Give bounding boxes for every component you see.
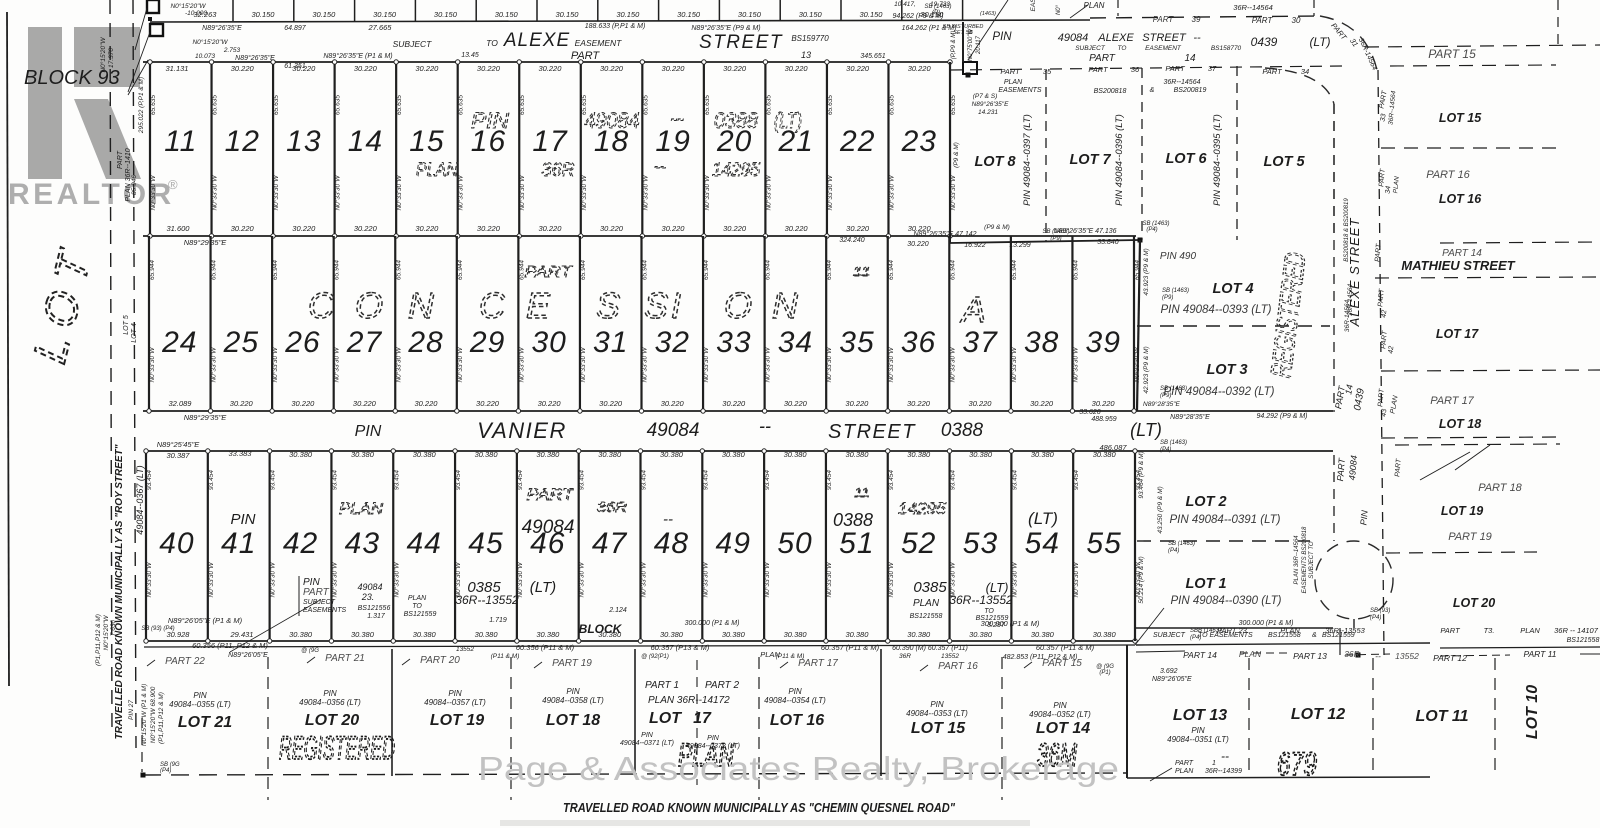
svg-text:PART 14: PART 14 <box>1183 650 1217 660</box>
svg-text:36: 36 <box>901 326 936 359</box>
svg-text:65.944: 65.944 <box>149 260 156 280</box>
svg-text:23: 23 <box>901 125 937 158</box>
svg-text:N0°33'30"W: N0°33'30"W <box>394 347 402 383</box>
svg-text:N0°33'30"W: N0°33'30"W <box>887 175 895 211</box>
svg-text:LOT 20: LOT 20 <box>305 712 359 729</box>
svg-text:SB (93): SB (93) <box>1370 608 1390 614</box>
svg-text:(P4): (P4) <box>1168 548 1179 554</box>
svg-text:N89°26'35"E 47.142: N89°26'35"E 47.142 <box>913 230 976 238</box>
svg-text:30.150: 30.150 <box>677 10 701 19</box>
svg-text:N89°26'05"E (P1 & M): N89°26'05"E (P1 & M) <box>168 616 243 625</box>
svg-text:13: 13 <box>286 125 321 158</box>
svg-text:30.220: 30.220 <box>599 399 623 408</box>
svg-text:12: 12 <box>225 125 260 158</box>
svg-text:PLAN 36R--14564: PLAN 36R--14564 <box>1294 535 1300 585</box>
svg-text:@ (92(P1): @ (92(P1) <box>641 654 669 660</box>
svg-text:PART: PART <box>525 264 573 281</box>
svg-text:55: 55 <box>1086 527 1121 560</box>
svg-text:34: 34 <box>778 326 813 359</box>
svg-text:60.356 (P11 & M): 60.356 (P11 & M) <box>516 643 575 652</box>
svg-text:VANIER: VANIER <box>477 418 567 443</box>
svg-text:30.220: 30.220 <box>662 64 686 73</box>
svg-text:PLAN 36R--14172: PLAN 36R--14172 <box>648 695 730 706</box>
svg-text:PART 12: PART 12 <box>1433 653 1467 663</box>
svg-text:51: 51 <box>839 527 874 560</box>
svg-text:LOT 11: LOT 11 <box>1415 708 1468 725</box>
svg-text:65.944: 65.944 <box>580 260 587 280</box>
svg-text:(LT): (LT) <box>530 579 556 596</box>
svg-text:C: C <box>308 285 335 326</box>
svg-text:93.454: 93.454 <box>1073 470 1080 490</box>
svg-text:TO: TO <box>1118 45 1127 52</box>
svg-text:30: 30 <box>1292 16 1301 25</box>
svg-text:65.635: 65.635 <box>335 95 342 115</box>
svg-text:SB (1463): SB (1463) <box>1168 541 1195 547</box>
svg-text:--: -- <box>654 156 666 176</box>
svg-text:PART 19: PART 19 <box>552 658 592 669</box>
svg-text:43: 43 <box>1381 409 1389 417</box>
svg-text:N0°33'30"W: N0°33'30"W <box>641 347 649 383</box>
svg-text:N0°33'30"W: N0°33'30"W <box>334 175 342 211</box>
svg-text:65.944: 65.944 <box>334 260 341 280</box>
svg-text:PLAN: PLAN <box>339 499 384 518</box>
svg-text:10.417,: 10.417, <box>894 1 916 8</box>
svg-text:LOT 1: LOT 1 <box>1185 576 1226 592</box>
svg-text:PART: PART <box>1335 456 1347 481</box>
svg-text:43.923 (P9 & M): 43.923 (P9 & M) <box>1143 248 1150 295</box>
svg-text:N0°33'30"W: N0°33'30"W <box>578 562 586 598</box>
svg-text:30.220: 30.220 <box>784 399 808 408</box>
svg-text:LOT 14: LOT 14 <box>1036 720 1090 737</box>
svg-text:36R--13552: 36R--13552 <box>949 593 1013 607</box>
svg-text:13.299: 13.299 <box>1009 242 1031 249</box>
svg-text:30.387: 30.387 <box>167 451 191 460</box>
svg-text:30.150: 30.150 <box>860 10 884 19</box>
svg-text:30.380: 30.380 <box>475 450 499 459</box>
svg-text:STREET: STREET <box>1142 32 1187 44</box>
svg-text:93.454: 93.454 <box>950 470 957 490</box>
svg-text:10.073: 10.073 <box>195 53 215 60</box>
svg-text:LOT 4: LOT 4 <box>131 323 138 343</box>
svg-text:C: C <box>479 285 506 326</box>
svg-text:93.454: 93.454 <box>641 470 648 490</box>
svg-text:30.220: 30.220 <box>414 399 438 408</box>
svg-text:13.45: 13.45 <box>461 52 479 59</box>
svg-text:N: N <box>408 285 435 326</box>
svg-text:N0°33'30"W: N0°33'30"W <box>764 175 772 211</box>
svg-text:93.454: 93.454 <box>270 470 277 490</box>
svg-text:32: 32 <box>655 326 690 359</box>
svg-text:49084--0355 (LT): 49084--0355 (LT) <box>169 700 231 709</box>
svg-text:14295: 14295 <box>898 499 947 518</box>
svg-text:TO: TO <box>486 38 498 48</box>
svg-text:93.454: 93.454 <box>702 470 709 490</box>
svg-text:N0°: N0° <box>1056 4 1062 15</box>
svg-text:93.454: 93.454 <box>517 470 524 490</box>
svg-text:(P4): (P4) <box>160 768 171 774</box>
svg-text:30.220: 30.220 <box>661 399 685 408</box>
svg-text:1: 1 <box>1212 760 1216 767</box>
svg-text:N0°33'30"W: N0°33'30"W <box>456 347 464 383</box>
svg-text:(LT): (LT) <box>1028 509 1058 528</box>
svg-text:0388: 0388 <box>833 510 873 530</box>
svg-text:93.454: 93.454 <box>579 470 586 490</box>
svg-text:36R: 36R <box>899 653 911 660</box>
svg-text:PART: PART <box>1440 626 1461 635</box>
svg-text:65.944: 65.944 <box>272 260 279 280</box>
svg-text:2.124: 2.124 <box>608 607 627 614</box>
svg-text:PART 21: PART 21 <box>325 653 365 664</box>
svg-text:--: -- <box>1193 32 1201 44</box>
svg-text:65.944: 65.944 <box>826 260 833 280</box>
svg-text:49: 49 <box>716 527 751 560</box>
svg-text:(LT): (LT) <box>774 108 802 133</box>
svg-text:33.840: 33.840 <box>1097 239 1119 246</box>
svg-text:--: -- <box>1375 651 1381 661</box>
svg-text:30.380: 30.380 <box>660 630 684 639</box>
svg-text:N89°28'35"E: N89°28'35"E <box>1143 400 1181 408</box>
svg-text:93.454: 93.454 <box>826 470 833 490</box>
svg-text:30.220: 30.220 <box>476 399 500 408</box>
svg-text:49084--0351 (LT): 49084--0351 (LT) <box>1167 735 1229 744</box>
svg-text:65.635: 65.635 <box>642 95 649 115</box>
svg-text:STREET: STREET <box>699 32 783 53</box>
svg-text:N0°33'30"W: N0°33'30"W <box>149 175 157 211</box>
svg-text:30.150: 30.150 <box>616 10 640 19</box>
svg-text:13552: 13552 <box>456 646 474 653</box>
svg-text:65.944: 65.944 <box>1072 260 1079 280</box>
svg-text:N0°15'20"W (P1 & M): N0°15'20"W (P1 & M) <box>140 684 148 747</box>
svg-text:--: -- <box>663 511 673 528</box>
svg-text:PIN: PIN <box>1191 726 1205 735</box>
svg-text:N0°33'30"W: N0°33'30"W <box>1010 347 1018 383</box>
svg-text:N0°33'30"W: N0°33'30"W <box>210 347 218 383</box>
svg-text:25: 25 <box>223 326 259 359</box>
svg-text:3.692: 3.692 <box>1160 668 1178 675</box>
svg-text:14295: 14295 <box>712 160 760 181</box>
svg-text:93.454: 93.454 <box>764 470 771 490</box>
svg-text:S: S <box>644 285 668 326</box>
svg-text:PART: PART <box>1089 53 1116 64</box>
svg-text:@ (9G: @ (9G <box>301 648 319 654</box>
svg-text:33: 33 <box>1379 113 1387 122</box>
svg-text:36R--14564: 36R--14564 <box>1233 3 1273 12</box>
svg-text:93.464 (P9 & M): 93.464 (P9 & M) <box>1138 451 1145 498</box>
svg-text:LOT 7: LOT 7 <box>1069 152 1111 168</box>
svg-text:64.897: 64.897 <box>284 25 307 32</box>
svg-text:N0°33'30"W: N0°33'30"W <box>207 562 215 598</box>
svg-text:LOT 16: LOT 16 <box>770 712 824 729</box>
svg-text:60.390 (M) 60.357 (P11): 60.390 (M) 60.357 (P11) <box>892 645 968 652</box>
svg-text:BS200818: BS200818 <box>1094 88 1127 95</box>
svg-text:30.380: 30.380 <box>413 630 437 639</box>
svg-text:93.454: 93.454 <box>208 470 215 490</box>
svg-text:N89°26'35"E: N89°26'35"E <box>972 100 1010 108</box>
svg-text:EASEMENT: EASEMENT <box>575 38 623 48</box>
svg-text:PIN: PIN <box>323 689 337 698</box>
svg-text:SUBJECT: SUBJECT <box>393 39 433 49</box>
svg-text:17: 17 <box>693 710 712 727</box>
svg-text:48: 48 <box>654 527 689 560</box>
svg-text:PART: PART <box>1165 64 1186 73</box>
svg-text:30.220: 30.220 <box>785 64 809 73</box>
svg-text:30.220: 30.220 <box>292 64 316 73</box>
svg-text:36R: 36R <box>1344 649 1360 659</box>
svg-text:LOT 5: LOT 5 <box>1263 154 1305 170</box>
svg-text:49084--0371 (LT): 49084--0371 (LT) <box>620 740 674 747</box>
svg-text:36R--14399: 36R--14399 <box>1205 768 1242 775</box>
svg-text:49084--0354 (LT): 49084--0354 (LT) <box>764 696 826 705</box>
svg-text:65.635: 65.635 <box>827 95 834 115</box>
svg-text:(P9): (P9) <box>1160 393 1171 399</box>
svg-text:30.150: 30.150 <box>556 10 580 19</box>
svg-text:65.635: 65.635 <box>519 95 526 115</box>
svg-text:N0°33'30"W: N0°33'30"W <box>211 175 219 211</box>
svg-text:PIN 49084--0393 (LT): PIN 49084--0393 (LT) <box>1160 304 1271 316</box>
svg-text:PART: PART <box>1262 67 1283 76</box>
svg-text:LOT 18: LOT 18 <box>1439 417 1481 431</box>
svg-text:22: 22 <box>839 125 875 158</box>
svg-text:PART 20: PART 20 <box>420 655 460 666</box>
svg-text:BS121558: BS121558 <box>1268 632 1301 639</box>
svg-text:65.635: 65.635 <box>704 95 711 115</box>
svg-text:33.620: 33.620 <box>1079 409 1101 416</box>
svg-text:N0°33'30"W: N0°33'30"W <box>763 562 771 598</box>
svg-text:N0°15'20"W: N0°15'20"W <box>192 38 228 46</box>
svg-text:42: 42 <box>283 527 318 560</box>
svg-text:30.380: 30.380 <box>1031 450 1055 459</box>
svg-text:42: 42 <box>1388 346 1396 354</box>
svg-text:65.635: 65.635 <box>950 95 957 115</box>
svg-text:14: 14 <box>1184 53 1196 64</box>
svg-text:N0°33'30"W: N0°33'30"W <box>580 175 588 211</box>
svg-text:49084--0356 (LT): 49084--0356 (LT) <box>299 698 361 707</box>
svg-text:LOT 15: LOT 15 <box>1439 111 1482 125</box>
svg-text:N0°33'30"W: N0°33'30"W <box>640 562 648 598</box>
svg-text:PIN: PIN <box>566 687 580 696</box>
svg-text:30.220: 30.220 <box>538 224 562 233</box>
svg-text:N89°26'05"E: N89°26'05"E <box>228 651 268 659</box>
svg-text:PART 13: PART 13 <box>1293 651 1327 661</box>
svg-text:30.220: 30.220 <box>477 224 501 233</box>
svg-text:PIN 49084--0397 (LT): PIN 49084--0397 (LT) <box>1022 114 1033 206</box>
svg-text:SUBJECT: SUBJECT <box>1153 632 1186 639</box>
svg-text:A: A <box>960 289 986 330</box>
svg-text:BS200819: BS200819 <box>1174 87 1207 94</box>
svg-text:42: 42 <box>1381 310 1389 318</box>
svg-text:PART 16: PART 16 <box>938 661 978 672</box>
svg-text:29: 29 <box>469 326 505 359</box>
svg-text:324.240: 324.240 <box>839 237 864 244</box>
svg-text:N0°33'30"W: N0°33'30"W <box>1072 562 1080 598</box>
svg-text:60.357 (P11 & M): 60.357 (P11 & M) <box>821 643 880 652</box>
svg-text:(P9): (P9) <box>1162 295 1173 301</box>
svg-text:30.380: 30.380 <box>1093 450 1117 459</box>
svg-text:0439: 0439 <box>1251 35 1278 49</box>
svg-text:N0°33'30"W: N0°33'30"W <box>392 562 400 598</box>
svg-text:ALEXE: ALEXE <box>1097 32 1134 44</box>
svg-text:SB (1463): SB (1463) <box>1162 288 1189 294</box>
svg-text:13552: 13552 <box>941 653 959 660</box>
svg-text:&: & <box>1312 632 1317 639</box>
svg-text:0388: 0388 <box>941 420 984 441</box>
svg-text:30.380: 30.380 <box>722 450 746 459</box>
svg-text:(P4): (P4) <box>1160 447 1171 453</box>
svg-text:30.380: 30.380 <box>845 450 869 459</box>
svg-text:30.380: 30.380 <box>969 630 993 639</box>
svg-text:30.150: 30.150 <box>373 10 397 19</box>
svg-text:30.220: 30.220 <box>354 64 378 73</box>
svg-text:N89°29'35"E: N89°29'35"E <box>184 413 228 422</box>
svg-text:BS121556: BS121556 <box>358 605 391 612</box>
svg-text:17.370: 17.370 <box>108 48 115 68</box>
svg-text:(P9 & M): (P9 & M) <box>953 142 960 168</box>
svg-text:93.454: 93.454 <box>455 470 462 490</box>
svg-text:PIN 49084--0395 (LT): PIN 49084--0395 (LT) <box>1212 114 1223 206</box>
svg-text:30.220: 30.220 <box>231 224 255 233</box>
svg-text:36R--14564: 36R--14564 <box>1164 79 1201 86</box>
svg-text:BS121559: BS121559 <box>404 611 437 618</box>
svg-text:PART 16: PART 16 <box>1426 169 1470 181</box>
svg-text:N0°33'30"W: N0°33'30"W <box>826 175 834 211</box>
svg-text:11: 11 <box>855 485 870 500</box>
svg-text:49084--0357 (LT): 49084--0357 (LT) <box>424 698 486 707</box>
svg-text:LOT 10: LOT 10 <box>1524 685 1541 739</box>
svg-text:52: 52 <box>901 527 936 560</box>
svg-text:PLAN: PLAN <box>408 595 427 602</box>
svg-text:65.944: 65.944 <box>1011 260 1018 280</box>
svg-text:PIN: PIN <box>992 31 1012 43</box>
svg-text:PIN: PIN <box>930 700 944 709</box>
svg-text:60.357 (P11 & M): 60.357 (P11 & M) <box>1036 643 1095 652</box>
svg-text:93.454: 93.454 <box>1011 470 1018 490</box>
svg-text:PIN 49084--0396 (LT): PIN 49084--0396 (LT) <box>1114 114 1125 206</box>
svg-text:E: E <box>526 285 551 326</box>
svg-text:30.220: 30.220 <box>354 224 378 233</box>
svg-text:30.220: 30.220 <box>231 64 255 73</box>
svg-text:N0°15'20"W 68.900: N0°15'20"W 68.900 <box>149 686 157 743</box>
svg-text:93.454: 93.454 <box>331 470 338 490</box>
svg-text:TO: TO <box>412 603 422 610</box>
svg-text:BS121559: BS121559 <box>1322 632 1355 639</box>
svg-text:LOT 21: LOT 21 <box>178 714 232 731</box>
svg-text:SB (1463): SB (1463) <box>1160 440 1187 446</box>
svg-text:93.454: 93.454 <box>393 470 400 490</box>
svg-text:27.665: 27.665 <box>368 23 393 32</box>
svg-text:®: ® <box>168 177 178 192</box>
svg-text:BS121558: BS121558 <box>1567 637 1600 644</box>
svg-text:300.000 (P1 & M): 300.000 (P1 & M) <box>685 620 740 627</box>
svg-text:N0°33'30"W: N0°33'30"W <box>271 347 279 383</box>
svg-text:TRAVELLED ROAD KNOWN MUNI: TRAVELLED ROAD KNOWN MUNICIPALLY AS "CHE… <box>563 801 956 815</box>
svg-text:30.220: 30.220 <box>845 399 869 408</box>
svg-text:30.220: 30.220 <box>723 224 747 233</box>
svg-text:65.635: 65.635 <box>273 95 280 115</box>
svg-text:-10.000: -10.000 <box>185 10 207 17</box>
svg-text:30.380: 30.380 <box>289 630 313 639</box>
svg-text:30.380: 30.380 <box>413 450 437 459</box>
svg-text:N0°33'30"W: N0°33'30"W <box>825 347 833 383</box>
svg-text:I: I <box>671 285 681 326</box>
svg-text:65.944: 65.944 <box>395 260 402 280</box>
svg-text:30.150: 30.150 <box>738 10 762 19</box>
svg-text:PIN 49084--0390 (LT): PIN 49084--0390 (LT) <box>1170 595 1281 607</box>
svg-text:30.380: 30.380 <box>1031 630 1055 639</box>
svg-text:PIN: PIN <box>355 423 382 440</box>
svg-text:--: -- <box>759 416 771 436</box>
svg-text:30.220: 30.220 <box>907 241 929 248</box>
svg-text:34: 34 <box>1301 67 1309 76</box>
svg-text:27: 27 <box>346 326 383 359</box>
svg-text:65.635: 65.635 <box>150 95 157 115</box>
svg-text:EASEMENTS: EASEMENTS <box>303 607 347 614</box>
svg-text:44: 44 <box>406 527 441 560</box>
svg-text:30.380: 30.380 <box>784 630 808 639</box>
svg-text:PIN 490: PIN 490 <box>1160 251 1197 262</box>
svg-text:LOT 19: LOT 19 <box>1441 504 1483 518</box>
svg-text:N89°28'35"E: N89°28'35"E <box>1170 413 1210 421</box>
svg-text:N0°33'30"W: N0°33'30"W <box>703 175 711 211</box>
svg-text:94.292 (P9 & M): 94.292 (P9 & M) <box>1257 413 1308 420</box>
svg-text:49084--0353 (LT): 49084--0353 (LT) <box>906 709 968 718</box>
svg-text:N0°33'30"W: N0°33'30"W <box>333 347 341 383</box>
svg-text:PART: PART <box>1252 16 1274 25</box>
svg-text:14: 14 <box>348 125 383 158</box>
svg-text:N0°33'30"W: N0°33'30"W <box>1071 347 1079 383</box>
svg-text:30.380: 30.380 <box>907 630 931 639</box>
svg-text:(P7 & S): (P7 & S) <box>973 93 998 100</box>
svg-text:PIN: PIN <box>448 689 462 698</box>
svg-text:37: 37 <box>1208 64 1217 73</box>
svg-text:(LT): (LT) <box>986 580 1009 595</box>
svg-text:N0°33'30"W: N0°33'30"W <box>517 347 525 383</box>
svg-text:LOT 12: LOT 12 <box>1291 706 1345 723</box>
svg-text:N89°26'35"E: N89°26'35"E <box>202 24 242 32</box>
svg-text:30.380: 30.380 <box>475 630 499 639</box>
svg-text:85.946: 85.946 <box>131 175 138 195</box>
svg-text:30.220: 30.220 <box>538 64 562 73</box>
svg-text:--: -- <box>1221 749 1229 763</box>
svg-text:LOT 6: LOT 6 <box>1165 151 1207 167</box>
svg-text:N0°15'20"W: N0°15'20"W <box>102 615 110 651</box>
svg-text:30.150: 30.150 <box>312 10 336 19</box>
svg-text:SB (1463): SB (1463) <box>1042 229 1069 235</box>
svg-text:65.635: 65.635 <box>458 95 465 115</box>
svg-text:PIN 27: PIN 27 <box>128 700 135 720</box>
svg-text:488.959: 488.959 <box>1091 416 1116 423</box>
svg-text:31.131: 31.131 <box>166 64 189 73</box>
svg-text:PLAN: PLAN <box>416 160 458 181</box>
svg-text:PART: PART <box>1153 15 1175 24</box>
svg-text:BS200818 & BS200819: BS200818 & BS200819 <box>1344 198 1350 262</box>
svg-text:93.454: 93.454 <box>146 470 153 490</box>
svg-text:30: 30 <box>531 326 566 359</box>
svg-text:38: 38 <box>1024 326 1059 359</box>
svg-text:13552: 13552 <box>1395 651 1419 661</box>
svg-text:30.220: 30.220 <box>477 64 501 73</box>
svg-text:PART 1: PART 1 <box>645 680 679 691</box>
svg-text:53: 53 <box>963 527 998 560</box>
svg-text:T3.: T3. <box>1484 626 1495 635</box>
svg-text:43.250 (P9 & M): 43.250 (P9 & M) <box>1157 486 1164 533</box>
svg-text:11: 11 <box>164 125 197 158</box>
svg-text:PIN 49084--0391 (LT): PIN 49084--0391 (LT) <box>1169 514 1280 526</box>
svg-text:16.922: 16.922 <box>964 242 986 249</box>
svg-text:0388: 0388 <box>714 108 759 133</box>
svg-text:65.944: 65.944 <box>457 260 464 280</box>
svg-text:26: 26 <box>284 326 320 359</box>
svg-text:LOT 4: LOT 4 <box>1212 281 1253 297</box>
